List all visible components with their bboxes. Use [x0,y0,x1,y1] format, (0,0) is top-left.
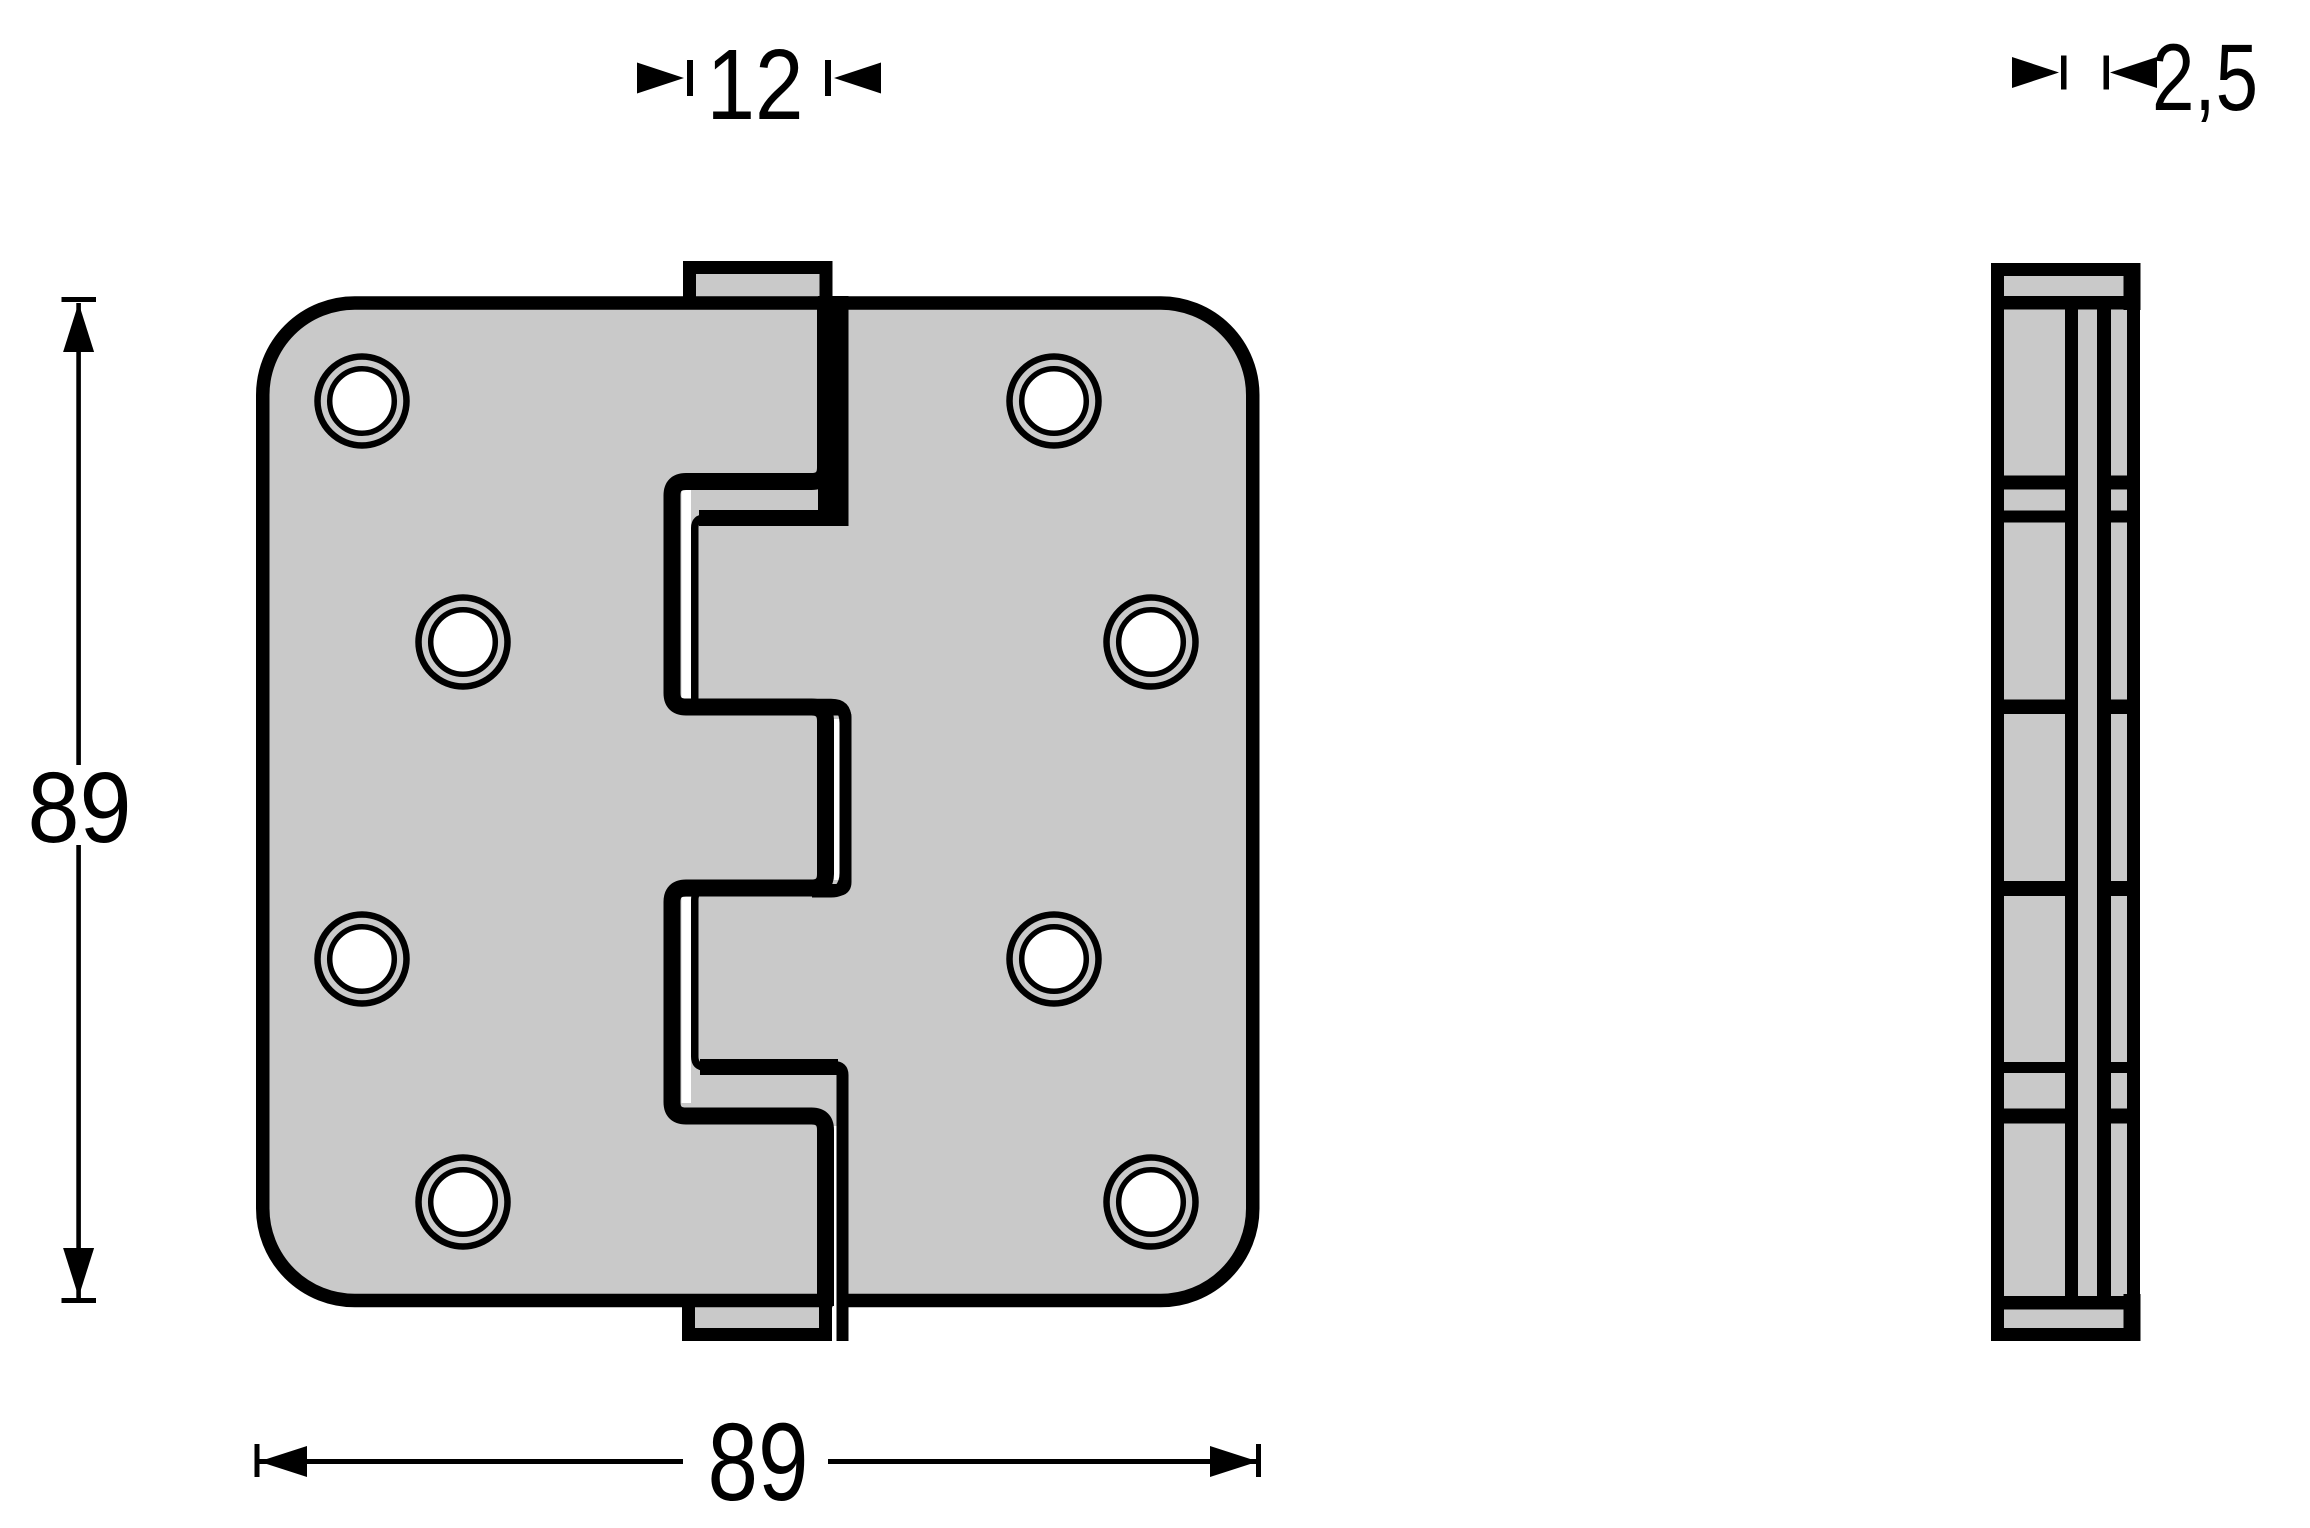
svg-text:12: 12 [707,29,804,141]
svg-text:89: 89 [708,1401,809,1524]
svg-text:2,5: 2,5 [2152,25,2258,131]
